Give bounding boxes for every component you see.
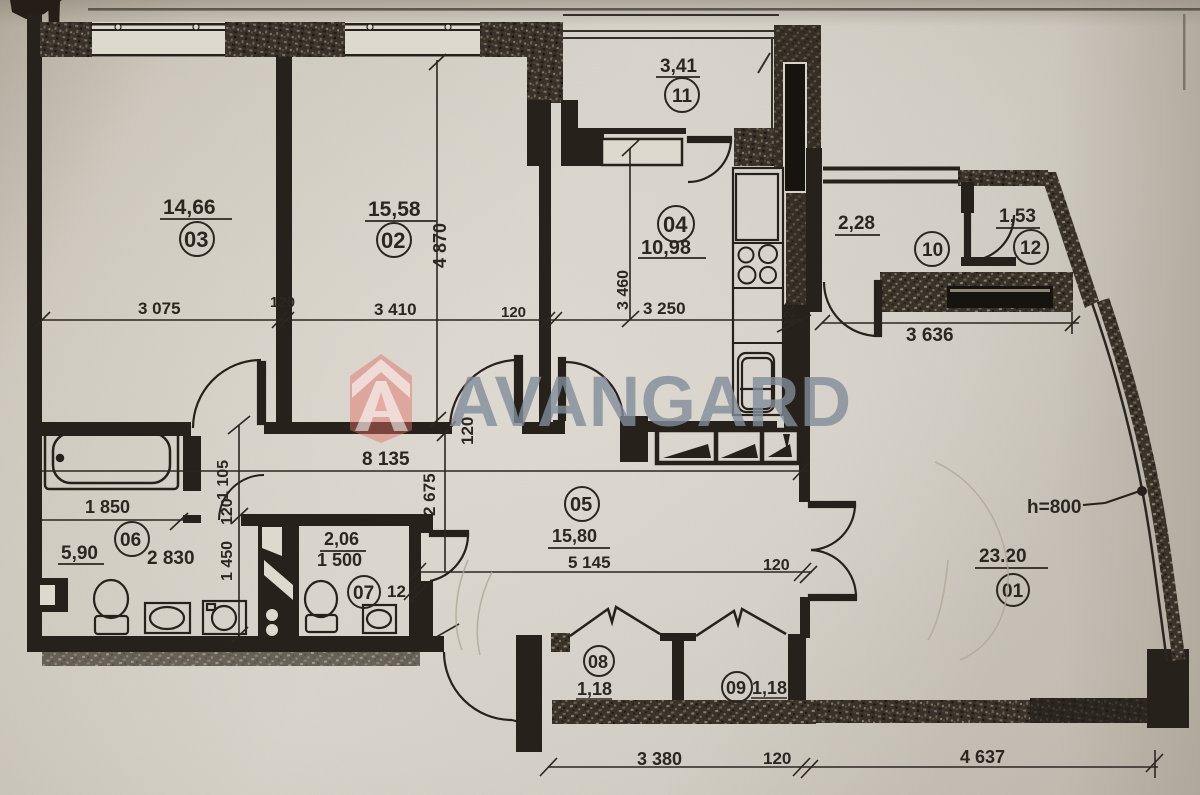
svg-text:1 105: 1 105: [215, 460, 232, 500]
svg-text:1,53: 1,53: [999, 206, 1036, 227]
svg-text:2 675: 2 675: [420, 473, 439, 516]
svg-text:03: 03: [184, 227, 208, 252]
svg-text:1,18: 1,18: [577, 679, 612, 699]
svg-text:23.20: 23.20: [979, 546, 1027, 567]
svg-text:120: 120: [763, 749, 791, 768]
svg-text:2,28: 2,28: [838, 213, 875, 234]
svg-text:3 075: 3 075: [138, 299, 181, 318]
svg-text:15,58: 15,58: [368, 198, 421, 221]
svg-text:12: 12: [387, 582, 406, 601]
svg-text:120: 120: [781, 302, 798, 327]
svg-text:01: 01: [1002, 581, 1024, 602]
svg-text:11: 11: [672, 86, 693, 107]
svg-text:4 637: 4 637: [960, 747, 1005, 767]
svg-text:8 135: 8 135: [362, 449, 410, 470]
svg-text:15,80: 15,80: [552, 526, 597, 546]
svg-text:3 380: 3 380: [637, 749, 682, 769]
svg-text:2,06: 2,06: [324, 529, 359, 549]
svg-text:4 870: 4 870: [430, 223, 450, 268]
svg-text:05: 05: [570, 494, 592, 516]
svg-text:14,66: 14,66: [163, 196, 216, 219]
svg-text:07: 07: [353, 583, 374, 604]
svg-text:2 830: 2 830: [147, 548, 195, 569]
svg-text:AVANGARD: AVANGARD: [448, 363, 852, 442]
svg-text:09: 09: [726, 678, 746, 698]
svg-text:04: 04: [663, 212, 688, 237]
svg-text:10: 10: [922, 240, 943, 261]
svg-text:02: 02: [381, 228, 405, 253]
svg-text:3 636: 3 636: [906, 325, 954, 346]
svg-text:h=800: h=800: [1027, 497, 1081, 518]
svg-text:120: 120: [501, 304, 526, 321]
svg-text:10,98: 10,98: [641, 237, 691, 259]
svg-text:120: 120: [763, 557, 790, 574]
svg-text:06: 06: [120, 530, 141, 551]
svg-text:3 410: 3 410: [374, 300, 417, 319]
svg-text:3 250: 3 250: [643, 299, 686, 318]
svg-text:3,41: 3,41: [660, 56, 697, 77]
svg-text:120: 120: [270, 294, 295, 311]
svg-text:12: 12: [1020, 238, 1041, 259]
svg-text:1 450: 1 450: [219, 541, 236, 581]
svg-text:1 500: 1 500: [317, 550, 362, 570]
svg-text:1 850: 1 850: [85, 497, 130, 517]
svg-text:08: 08: [588, 652, 608, 672]
svg-text:1,18: 1,18: [752, 678, 787, 698]
svg-text:5,90: 5,90: [61, 543, 98, 564]
svg-text:5 145: 5 145: [568, 553, 611, 572]
svg-text:120: 120: [219, 498, 236, 525]
svg-text:3 460: 3 460: [615, 270, 632, 310]
